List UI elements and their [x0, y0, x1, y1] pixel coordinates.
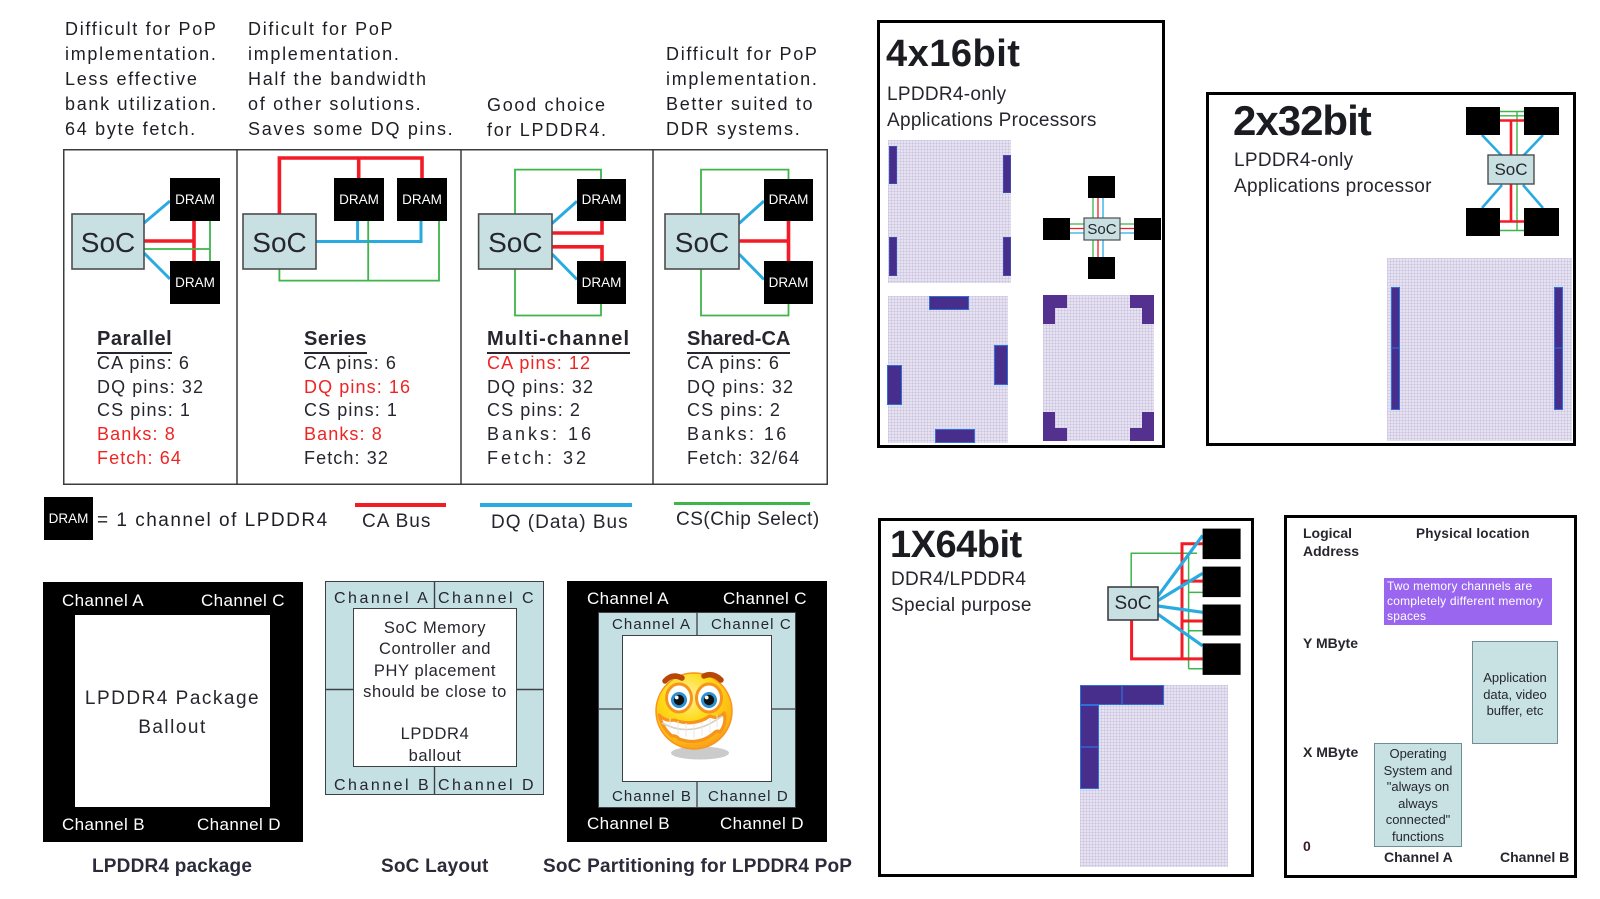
svg-text:SoC: SoC: [81, 227, 135, 258]
svg-text:DRAM: DRAM: [175, 192, 215, 207]
svg-text:DRAM: DRAM: [175, 275, 215, 290]
svg-text:DRAM: DRAM: [339, 192, 379, 207]
svg-text:SoC: SoC: [1115, 593, 1152, 614]
svg-text:DRAM: DRAM: [582, 275, 622, 290]
svg-text:SoC: SoC: [1494, 160, 1527, 179]
svg-text:SoC: SoC: [1087, 221, 1116, 238]
svg-text:DRAM: DRAM: [769, 275, 809, 290]
svg-text:DRAM: DRAM: [582, 192, 622, 207]
svg-text:DRAM: DRAM: [402, 192, 442, 207]
svg-text:SoC: SoC: [675, 227, 729, 258]
svg-text:SoC: SoC: [252, 227, 306, 258]
svg-text:SoC: SoC: [488, 227, 542, 258]
svg-text:DRAM: DRAM: [769, 192, 809, 207]
